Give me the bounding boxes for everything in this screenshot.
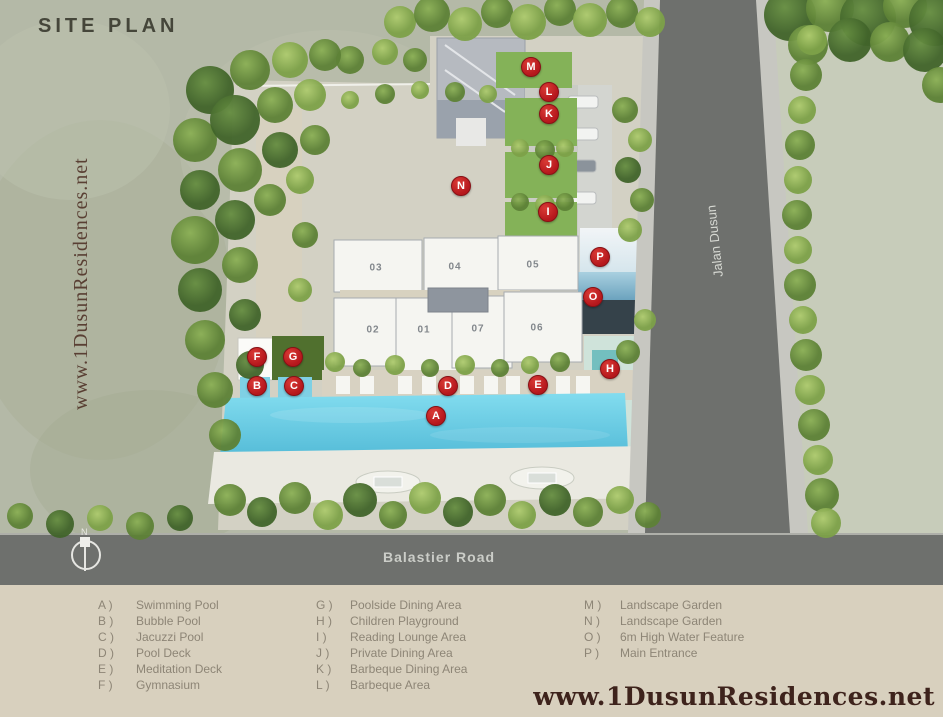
- tree-icon: [262, 132, 298, 168]
- legend-item: F )Gymnasium: [98, 677, 222, 693]
- tree-icon: [811, 508, 841, 538]
- legend-key: J ): [316, 646, 350, 660]
- tree-icon: [628, 128, 652, 152]
- tree-icon: [222, 247, 258, 283]
- tree-icon: [805, 478, 839, 512]
- legend-key: D ): [98, 646, 136, 660]
- tree-icon: [612, 97, 638, 123]
- legend-key: M ): [584, 598, 620, 612]
- amenity-marker-l: L: [539, 82, 559, 102]
- tree-icon: [795, 375, 825, 405]
- tree-icon: [616, 340, 640, 364]
- tree-icon: [782, 200, 812, 230]
- legend-key: P ): [584, 646, 620, 660]
- tree-icon: [785, 130, 815, 160]
- tree-icon: [479, 85, 497, 103]
- tree-icon: [539, 484, 571, 516]
- tree-icon: [185, 320, 225, 360]
- legend-label: Meditation Deck: [136, 662, 222, 676]
- compass-north-label: N: [81, 527, 88, 537]
- legend-key: N ): [584, 614, 620, 628]
- tree-icon: [209, 419, 241, 451]
- legend-key: H ): [316, 614, 350, 628]
- amenity-marker-o: O: [583, 287, 603, 307]
- amenity-marker-a: A: [426, 406, 446, 426]
- tree-icon: [445, 82, 465, 102]
- tree-icon: [511, 193, 529, 211]
- legend-label: Pool Deck: [136, 646, 191, 660]
- tree-icon: [635, 502, 661, 528]
- tree-icon: [784, 166, 812, 194]
- tree-icon: [385, 355, 405, 375]
- tree-icon: [630, 188, 654, 212]
- legend-column-1: A )Swimming PoolB )Bubble PoolC )Jacuzzi…: [98, 597, 222, 693]
- page-title: SITE PLAN: [38, 15, 178, 38]
- tree-icon: [180, 170, 220, 210]
- tree-icon: [510, 4, 546, 40]
- tree-icon: [573, 3, 607, 37]
- tree-icon: [784, 269, 816, 301]
- legend-label: Jacuzzi Pool: [136, 630, 203, 644]
- site-plan-graphic: [0, 0, 943, 585]
- tree-icon: [790, 59, 822, 91]
- tree-icon: [615, 157, 641, 183]
- tree-icon: [294, 79, 326, 111]
- legend-key: K ): [316, 662, 350, 676]
- legend-item: P )Main Entrance: [584, 645, 744, 661]
- tree-icon: [618, 218, 642, 242]
- legend-key: G ): [316, 598, 350, 612]
- legend-label: Reading Lounge Area: [350, 630, 466, 644]
- legend-label: Swimming Pool: [136, 598, 219, 612]
- legend-label: Gymnasium: [136, 678, 200, 692]
- tree-icon: [828, 18, 872, 62]
- legend-panel: www.1DusunResidences.net A )Swimming Poo…: [0, 585, 943, 717]
- tree-icon: [230, 50, 270, 90]
- tree-icon: [229, 299, 261, 331]
- legend-item: G )Poolside Dining Area: [316, 597, 467, 613]
- tree-icon: [550, 352, 570, 372]
- tree-icon: [421, 359, 439, 377]
- tree-icon: [448, 7, 482, 41]
- legend-column-3: M )Landscape GardenN )Landscape GardenO …: [584, 597, 744, 661]
- amenity-marker-b: B: [247, 376, 267, 396]
- tree-icon: [167, 505, 193, 531]
- tree-icon: [375, 84, 395, 104]
- legend-label: 6m High Water Feature: [620, 630, 744, 644]
- building-number: 05: [526, 260, 539, 271]
- building-number: 03: [369, 263, 382, 274]
- tree-icon: [790, 339, 822, 371]
- legend-label: Main Entrance: [620, 646, 697, 660]
- legend-key: O ): [584, 630, 620, 644]
- amenity-marker-f: F: [247, 347, 267, 367]
- legend-item: L )Barbeque Area: [316, 677, 467, 693]
- legend-label: Children Playground: [350, 614, 459, 628]
- legend-key: C ): [98, 630, 136, 644]
- amenity-marker-n: N: [451, 176, 471, 196]
- tree-icon: [215, 200, 255, 240]
- tree-icon: [286, 166, 314, 194]
- tree-icon: [343, 483, 377, 517]
- legend-item: O )6m High Water Feature: [584, 629, 744, 645]
- tree-icon: [178, 268, 222, 312]
- tree-icon: [573, 497, 603, 527]
- legend-item: C )Jacuzzi Pool: [98, 629, 222, 645]
- legend-item: I )Reading Lounge Area: [316, 629, 467, 645]
- tree-icon: [279, 482, 311, 514]
- building-number: 06: [530, 323, 543, 334]
- amenity-marker-h: H: [600, 359, 620, 379]
- tree-icon: [7, 503, 33, 529]
- amenity-marker-k: K: [539, 104, 559, 124]
- buildings-block: [334, 236, 582, 372]
- legend-key: B ): [98, 614, 136, 628]
- tree-icon: [171, 216, 219, 264]
- amenity-marker-j: J: [539, 155, 559, 175]
- site-plan-map: SITE PLAN www.1DusunResidences.net Jalan…: [0, 0, 943, 585]
- tree-icon: [325, 352, 345, 372]
- building-number: 07: [471, 324, 484, 335]
- tree-icon: [210, 95, 260, 145]
- amenity-marker-g: G: [283, 347, 303, 367]
- tree-icon: [218, 148, 262, 192]
- tree-icon: [384, 6, 416, 38]
- tree-icon: [313, 500, 343, 530]
- legend-item: B )Bubble Pool: [98, 613, 222, 629]
- legend-item: D )Pool Deck: [98, 645, 222, 661]
- building-number: 01: [417, 325, 430, 336]
- building-number: 02: [366, 325, 379, 336]
- tree-icon: [606, 486, 634, 514]
- legend-item: M )Landscape Garden: [584, 597, 744, 613]
- legend-item: E )Meditation Deck: [98, 661, 222, 677]
- site-plan-image: SITE PLAN www.1DusunResidences.net Jalan…: [0, 0, 943, 717]
- tree-icon: [784, 236, 812, 264]
- tree-icon: [556, 193, 574, 211]
- amenity-marker-e: E: [528, 375, 548, 395]
- tree-icon: [797, 25, 827, 55]
- tree-icon: [247, 497, 277, 527]
- tree-icon: [455, 355, 475, 375]
- legend-label: Barbeque Area: [350, 678, 430, 692]
- tree-icon: [341, 91, 359, 109]
- watermark-bottom: www.1DusunResidences.net: [533, 682, 935, 711]
- tree-icon: [173, 118, 217, 162]
- compass-icon: N: [60, 527, 112, 579]
- amenity-marker-p: P: [590, 247, 610, 267]
- legend-key: I ): [316, 630, 350, 644]
- tree-icon: [803, 445, 833, 475]
- watermark-vertical: www.1DusunResidences.net: [70, 112, 98, 410]
- legend-label: Bubble Pool: [136, 614, 201, 628]
- legend-label: Landscape Garden: [620, 598, 722, 612]
- amenity-marker-i: I: [538, 202, 558, 222]
- tree-icon: [508, 501, 536, 529]
- tree-icon: [254, 184, 286, 216]
- tree-icon: [411, 81, 429, 99]
- legend-item: K )Barbeque Dining Area: [316, 661, 467, 677]
- legend-label: Landscape Garden: [620, 614, 722, 628]
- tree-icon: [372, 39, 398, 65]
- legend-item: A )Swimming Pool: [98, 597, 222, 613]
- tree-icon: [126, 512, 154, 540]
- tree-icon: [353, 359, 371, 377]
- tree-icon: [443, 497, 473, 527]
- tree-icon: [491, 359, 509, 377]
- legend-item: N )Landscape Garden: [584, 613, 744, 629]
- tree-icon: [635, 7, 665, 37]
- tree-icon: [288, 278, 312, 302]
- tree-icon: [474, 484, 506, 516]
- tree-icon: [292, 222, 318, 248]
- legend-label: Private Dining Area: [350, 646, 453, 660]
- legend-key: E ): [98, 662, 136, 676]
- tree-icon: [556, 139, 574, 157]
- tree-icon: [511, 139, 529, 157]
- amenity-marker-c: C: [284, 376, 304, 396]
- legend-item: H )Children Playground: [316, 613, 467, 629]
- tree-icon: [214, 484, 246, 516]
- amenity-marker-d: D: [438, 376, 458, 396]
- tree-icon: [257, 87, 293, 123]
- legend-key: F ): [98, 678, 136, 692]
- tree-icon: [379, 501, 407, 529]
- tree-icon: [300, 125, 330, 155]
- tree-icon: [309, 39, 341, 71]
- amenity-marker-m: M: [521, 57, 541, 77]
- tree-icon: [634, 309, 656, 331]
- swimming-pool: [220, 393, 628, 456]
- building-number: 04: [448, 262, 461, 273]
- legend-item: J )Private Dining Area: [316, 645, 467, 661]
- legend-column-2: G )Poolside Dining AreaH )Children Playg…: [316, 597, 467, 693]
- legend-key: L ): [316, 678, 350, 692]
- tree-icon: [788, 96, 816, 124]
- road-label-balastier: Balastier Road: [383, 549, 495, 565]
- tree-icon: [197, 372, 233, 408]
- legend-label: Poolside Dining Area: [350, 598, 461, 612]
- tree-icon: [403, 48, 427, 72]
- tree-icon: [272, 42, 308, 78]
- tree-icon: [798, 409, 830, 441]
- legend-label: Barbeque Dining Area: [350, 662, 467, 676]
- legend-key: A ): [98, 598, 136, 612]
- tree-icon: [409, 482, 441, 514]
- tree-icon: [789, 306, 817, 334]
- tree-icon: [521, 356, 539, 374]
